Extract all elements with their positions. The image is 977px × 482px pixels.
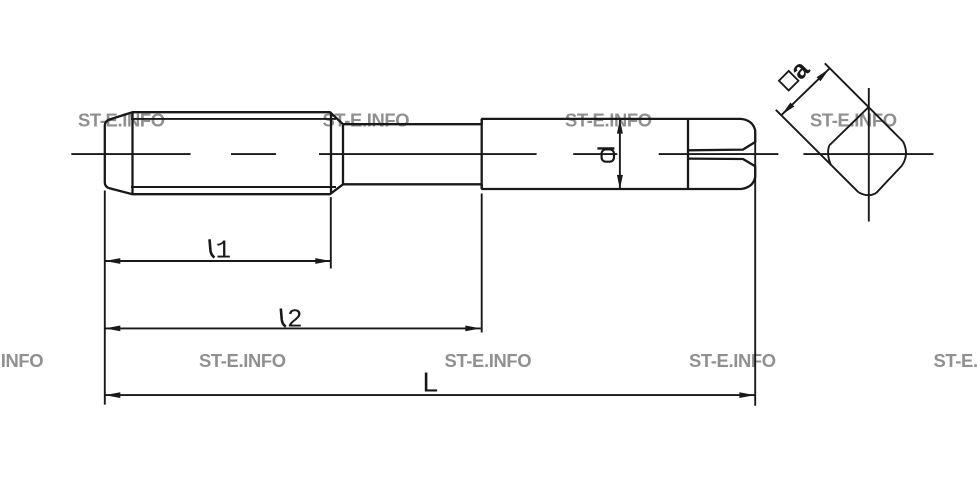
svg-text:ST-E.INFO: ST-E.INFO bbox=[934, 350, 977, 371]
svg-text:1: 1 bbox=[216, 236, 232, 266]
svg-text:ST-E.INFO: ST-E.INFO bbox=[689, 350, 776, 371]
svg-text:L: L bbox=[423, 366, 439, 397]
svg-text:ST-E.INFO: ST-E.INFO bbox=[323, 110, 410, 131]
svg-text:ST-E.INFO: ST-E.INFO bbox=[810, 110, 897, 131]
svg-text:ST-E.INFO: ST-E.INFO bbox=[199, 350, 286, 371]
svg-text:ST-E.INFO: ST-E.INFO bbox=[445, 350, 532, 371]
svg-text:ST-E.INFO: ST-E.INFO bbox=[0, 350, 43, 371]
svg-text:2: 2 bbox=[287, 305, 303, 335]
